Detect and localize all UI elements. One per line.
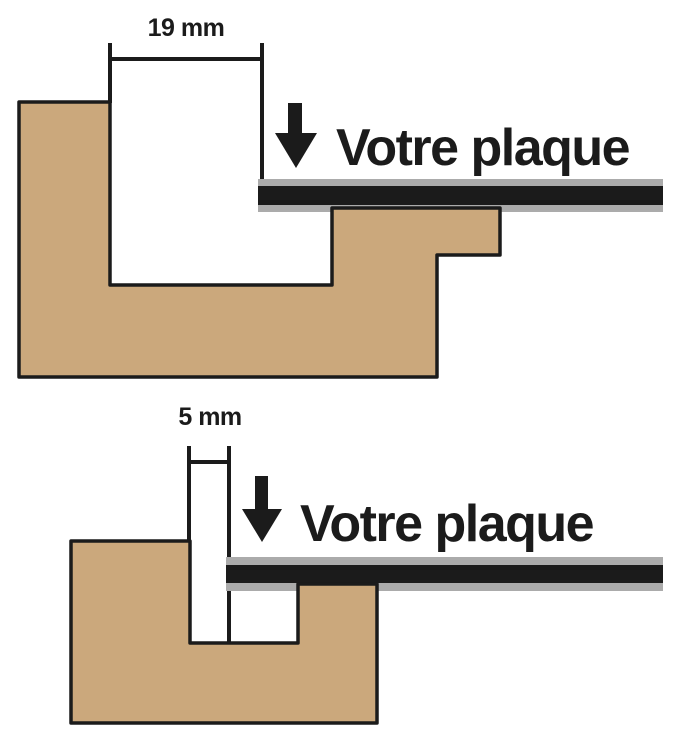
bottom-plaque-core — [226, 565, 663, 583]
diagram-canvas — [0, 0, 680, 746]
bottom-plaque-lower-gray — [226, 583, 663, 591]
bottom-dim-tick-left — [187, 446, 191, 542]
bottom-dim-tick-right — [227, 446, 231, 643]
bottom-plaque-label: Votre plaque — [300, 498, 593, 550]
top-plaque-upper-gray — [258, 179, 663, 186]
top-down-arrow-shaft — [288, 103, 302, 134]
frame-profile-diagram: 19 mm Votre plaque 5 mm Votre plaque — [0, 0, 680, 746]
top-dim-line — [110, 57, 262, 61]
bottom-down-arrow-shaft — [255, 476, 268, 509]
top-dimension-label: 19 mm — [110, 16, 262, 41]
bottom-dimension-label: 5 mm — [155, 405, 265, 430]
top-dim-tick-right — [260, 43, 264, 180]
top-plaque-label: Votre plaque — [336, 122, 629, 174]
bottom-down-arrow-head — [242, 509, 282, 542]
bottom-plaque-upper-gray — [226, 557, 663, 565]
top-dim-tick-left — [108, 43, 112, 103]
top-plaque-core — [258, 186, 663, 205]
top-down-arrow-head — [275, 133, 317, 168]
bottom-dim-line — [189, 460, 229, 464]
